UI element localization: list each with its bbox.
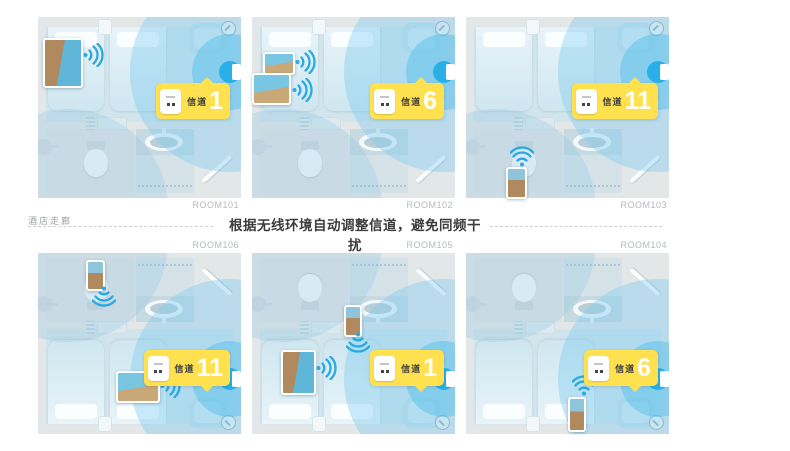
wifi-signal-icon [291, 78, 315, 102]
phone-device [568, 397, 586, 432]
channel-badge: 信道 6 [370, 83, 444, 119]
bed [476, 340, 532, 424]
channel-label: 信道 [187, 95, 207, 108]
wifi-signal-icon [346, 331, 370, 355]
channel-badge: 信道 1 [370, 350, 444, 386]
room-label: ROOM102 [406, 200, 453, 210]
channel-badge: 信道 1 [156, 83, 230, 119]
badge-pointer [200, 70, 214, 84]
tablet-device [281, 350, 316, 395]
channel-number: 1 [209, 88, 223, 114]
ap-device-icon [374, 356, 395, 381]
corridor-dashed-line [490, 226, 662, 227]
ap-device-icon [148, 356, 169, 381]
ap-device-icon [374, 89, 395, 114]
wifi-signal-icon [82, 43, 106, 67]
channel-badge: 信道 6 [584, 350, 658, 386]
room-label: ROOM105 [406, 240, 453, 250]
tablet-device [263, 52, 295, 75]
room-panel-room106: 信道 11 ROOM106 [38, 253, 241, 434]
room-panel-room102: 信道 6 ROOM102 [252, 17, 455, 198]
room-label: ROOM106 [192, 240, 239, 250]
wifi-signal-icon [510, 144, 534, 168]
room-label: ROOM104 [620, 240, 667, 250]
nightstand [98, 19, 112, 35]
wifi-signal-icon [315, 356, 339, 380]
room-panel-room103: 信道 11 ROOM103 [466, 17, 669, 198]
room-panel-room104: 信道 6 ROOM104 [466, 253, 669, 434]
channel-badge: 信道 11 [572, 83, 658, 119]
floorplan [38, 253, 241, 434]
room-label: ROOM101 [192, 200, 239, 210]
bed [476, 27, 532, 111]
tablet-device [43, 38, 83, 88]
room-panel-room105: 信道 1 ROOM105 [252, 253, 455, 434]
ap-device-icon [588, 356, 609, 381]
wifi-signal-icon [92, 285, 116, 309]
ap-device-icon [160, 89, 181, 114]
room-panel-room101: 信道 1 ROOM101 [38, 17, 241, 198]
channel-badge: 信道 11 [144, 350, 230, 386]
hotel-wifi-channel-diagram: 信道 1 ROOM101 [0, 0, 790, 451]
ap-device-icon [576, 89, 597, 114]
wifi-signal-icon [294, 50, 318, 74]
bed [48, 340, 104, 424]
room-label: ROOM103 [620, 200, 667, 210]
phone-device [506, 167, 527, 199]
tablet-device [252, 73, 291, 105]
corridor-dashed-line [28, 226, 213, 227]
access-point-wall-mount [232, 64, 241, 80]
nightstand [312, 19, 326, 35]
